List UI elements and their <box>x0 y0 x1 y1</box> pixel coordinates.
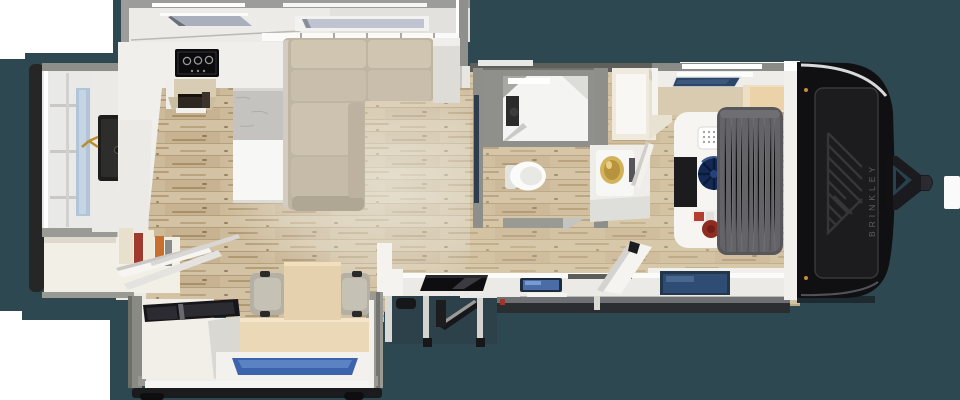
svg-text:BRINKLEY: BRINKLEY <box>867 163 877 237</box>
